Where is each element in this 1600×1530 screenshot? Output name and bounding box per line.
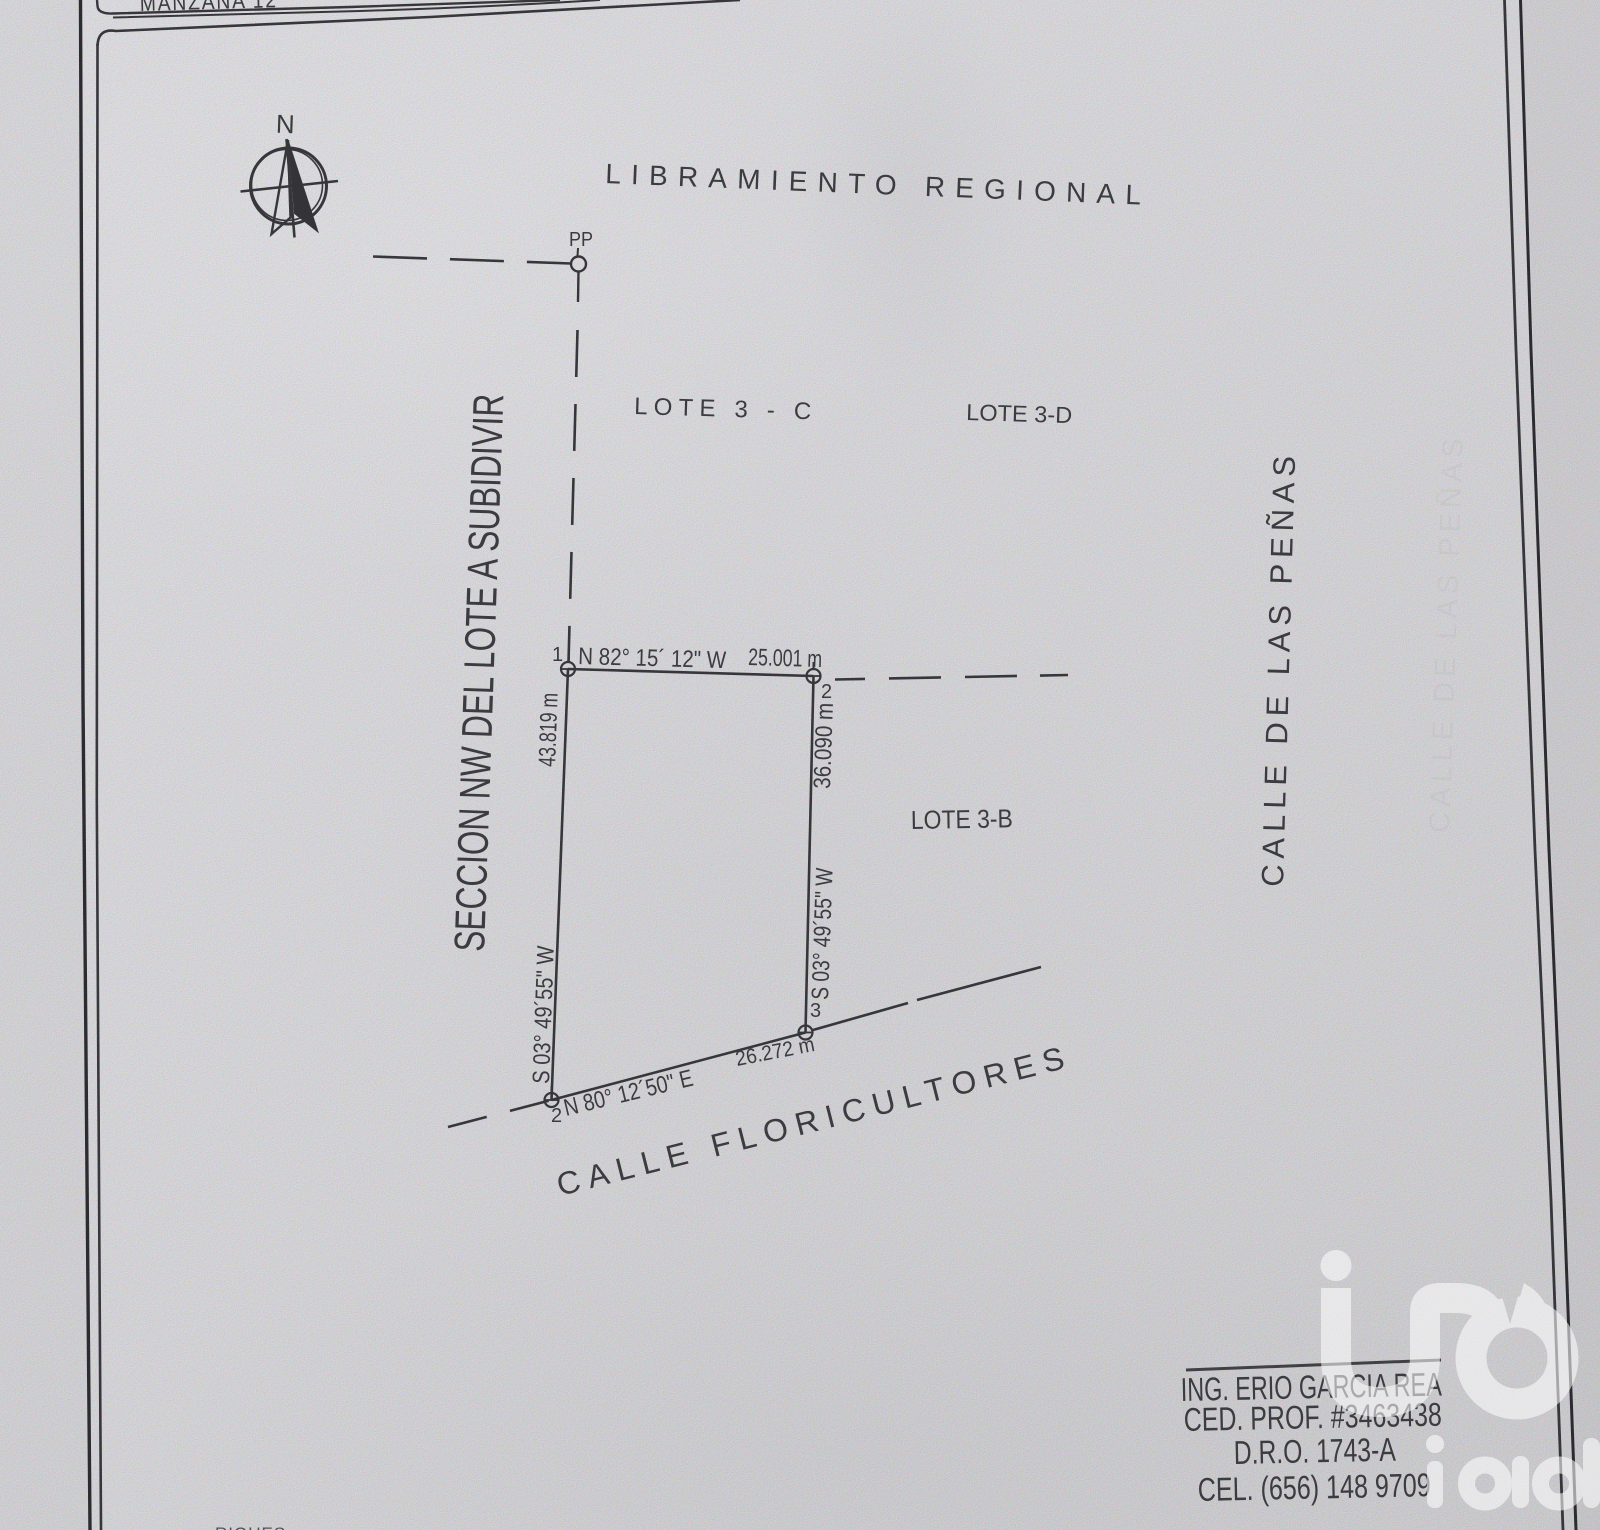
svg-text:2: 2 (551, 1105, 562, 1127)
svg-text:2: 2 (821, 681, 832, 703)
svg-text:CEL. (656) 148 9709: CEL. (656) 148 9709 (1197, 1466, 1431, 1508)
svg-text:25.001 m: 25.001 m (748, 644, 823, 673)
svg-text:S 03° 49´55" W: S 03° 49´55" W (528, 945, 560, 1084)
svg-text:LOTE 3-D: LOTE 3-D (966, 399, 1073, 428)
svg-text:43.819 m: 43.819 m (534, 692, 564, 767)
svg-text:N 82° 15´ 12" W: N 82° 15´ 12" W (578, 643, 727, 674)
svg-text:S 03° 49´55" W: S 03° 49´55" W (807, 867, 839, 1000)
svg-text:1: 1 (552, 644, 563, 666)
svg-text:D.R.O. 1743-A: D.R.O. 1743-A (1233, 1431, 1396, 1471)
svg-text:3: 3 (810, 1000, 821, 1022)
svg-text:LOTE 3 - C: LOTE 3 - C (634, 393, 819, 425)
svg-text:36.090 m: 36.090 m (809, 702, 839, 789)
svg-text:PP: PP (569, 229, 593, 251)
svg-text:N: N (275, 109, 295, 140)
svg-text:LOTE 3-B: LOTE 3-B (911, 803, 1014, 835)
svg-text:RIGUES: RIGUES (215, 1524, 286, 1530)
